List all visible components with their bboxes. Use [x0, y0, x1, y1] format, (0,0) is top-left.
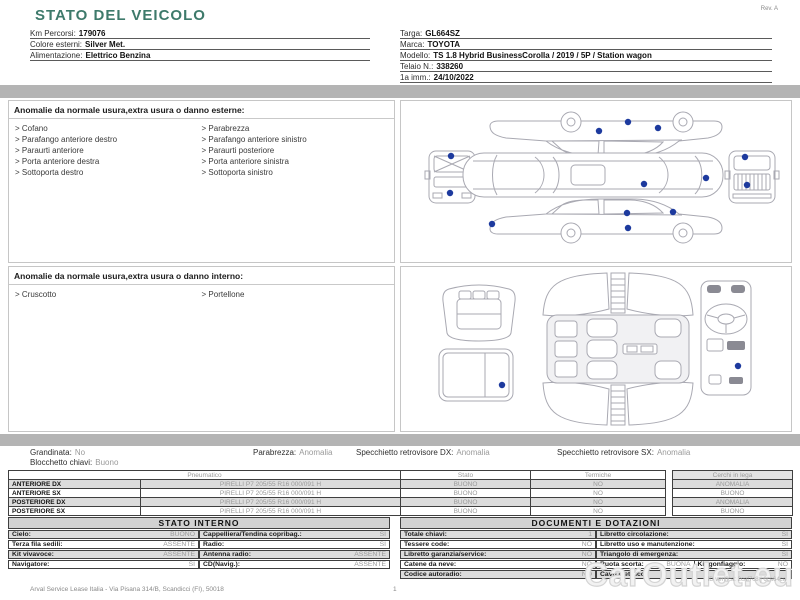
item-label: Cappelliera/Tendina copribag.:	[203, 531, 302, 538]
anomaly-item: Sottoporta destro	[15, 167, 202, 178]
item-label: Kit vivavoce:	[12, 551, 54, 558]
field-label: Alimentazione:	[30, 51, 82, 60]
field-label: Telaio N.:	[400, 62, 433, 71]
anomaly-item: Paraurti anteriore	[15, 145, 202, 156]
anomaly-item: Porta anteriore sinistra	[202, 156, 389, 167]
tire-cerchi: BUONO	[673, 507, 793, 516]
car-side-view-bottom	[490, 199, 722, 243]
rear-cabin-view	[443, 285, 515, 341]
table-row: Totale chiavi:1 Libretto circolazione:SI	[400, 530, 792, 539]
item-label: Codice autoradio:	[404, 571, 462, 578]
revision-label: Rev. A	[761, 6, 778, 12]
tire-stato: BUONO	[401, 507, 531, 516]
field-label: Marca:	[400, 40, 424, 49]
item-label: Antenna radio:	[203, 551, 251, 558]
table-row: Terza fila sedili:ASSENTE Radio:SI	[8, 540, 390, 549]
field-label: Km Percorsi:	[30, 29, 76, 38]
summary-blocchetto: Blocchetto chiavi:Buono	[30, 458, 118, 467]
summary-label: Specchietto retrovisore DX:	[356, 448, 453, 457]
external-anomalies-panel: Anomalie da normale usura,extra usura o …	[8, 100, 395, 263]
summary-value: Anomalia	[299, 448, 332, 457]
tire-termiche: NO	[531, 480, 666, 489]
item-value: SI	[380, 531, 386, 538]
anomaly-item: Parafango anteriore sinistro	[202, 134, 389, 145]
anomaly-item: Porta anteriore destra	[15, 156, 202, 167]
anomaly-item: Cofano	[15, 123, 202, 134]
anomaly-item: Paraurti posteriore	[202, 145, 389, 156]
field-row: Telaio N.: 338260	[400, 61, 772, 72]
field-value: 338260	[436, 62, 463, 71]
tire-header-row: Pneumatico Stato Termiche Cerchi in lega	[9, 471, 793, 480]
separator-bar	[0, 85, 800, 98]
tire-position: ANTERIORE DX	[9, 480, 141, 489]
tire-termiche: NO	[531, 507, 666, 516]
anomaly-item: Parabrezza	[202, 123, 389, 134]
car-top-view	[463, 153, 723, 197]
vehicle-info-left: Km Percorsi: 179076 Colore esterni: Silv…	[30, 28, 370, 61]
car-rear-view	[725, 151, 779, 203]
anomaly-item: Cruscotto	[15, 289, 202, 300]
tire-termiche: NO	[531, 489, 666, 498]
field-value: 179076	[79, 29, 106, 38]
tire-position: ANTERIORE SX	[9, 489, 141, 498]
tire-spec: PIRELLI P7 205/55 R16 000/091 H	[141, 507, 401, 516]
field-label: Colore esterni:	[30, 40, 82, 49]
summary-grandinata: Grandinata:No	[30, 448, 85, 457]
summary-label: Specchietto retrovisore SX:	[557, 448, 654, 457]
item-label: Radio:	[203, 541, 224, 548]
documenti-title: DOCUMENTI E DOTAZIONI	[400, 517, 792, 529]
tire-row: ANTERIORE DX PIRELLI P7 205/55 R16 000/0…	[9, 480, 793, 489]
page-title: STATO DEL VEICOLO	[35, 7, 206, 24]
tire-spec: PIRELLI P7 205/55 R16 000/091 H	[141, 498, 401, 507]
item-label: Catene da neve:	[404, 561, 456, 568]
summary-label: Grandinata:	[30, 448, 72, 457]
item-value: SI	[782, 541, 788, 548]
summary-label: Parabrezza:	[253, 448, 296, 457]
field-row: 1a imm.: 24/10/2022	[400, 72, 772, 83]
item-label: Libretto circolazione:	[600, 531, 669, 538]
interior-diagram-panel	[400, 266, 792, 432]
table-row: Kit vivavoce:ASSENTE Antenna radio:ASSEN…	[8, 550, 390, 559]
field-value: 24/10/2022	[434, 73, 474, 82]
summary-specchietto-sx: Specchietto retrovisore SX:Anomalia	[557, 448, 690, 457]
field-row: Colore esterni: Silver Met.	[30, 39, 370, 50]
internal-anomalies-title: Anomalie da normale usura,extra usura o …	[9, 267, 394, 285]
summary-parabrezza: Parabrezza:Anomalia	[253, 448, 333, 457]
external-anomalies-title: Anomalie da normale usura,extra usura o …	[9, 101, 394, 119]
field-value: GL664SZ	[425, 29, 460, 38]
table-row: Navigatore:SI CD(Navig.):ASSENTE	[8, 560, 390, 569]
tire-position: POSTERIORE DX	[9, 498, 141, 507]
tire-table: Pneumatico Stato Termiche Cerchi in lega…	[8, 470, 793, 516]
tire-header-pneumatico: Pneumatico	[9, 471, 401, 480]
tire-spec: PIRELLI P7 205/55 R16 000/091 H	[141, 489, 401, 498]
item-value: ASSENTE	[163, 541, 195, 548]
field-row: Alimentazione: Elettrico Benzina	[30, 50, 370, 61]
watermark: CarOutlet.eu	[584, 556, 794, 594]
tire-cerchi: BUONO	[673, 489, 793, 498]
field-row: Modello: TS 1.8 Hybrid BusinessCorolla /…	[400, 50, 772, 61]
tire-row: ANTERIORE SX PIRELLI P7 205/55 R16 000/0…	[9, 489, 793, 498]
summary-value: Anomalia	[657, 448, 690, 457]
item-label: Cielo:	[12, 531, 31, 538]
field-value: TS 1.8 Hybrid BusinessCorolla / 2019 / 5…	[433, 51, 652, 60]
tire-spec: PIRELLI P7 205/55 R16 000/091 H	[141, 480, 401, 489]
tire-row: POSTERIORE DX PIRELLI P7 205/55 R16 000/…	[9, 498, 793, 507]
summary-value: Buono	[95, 458, 118, 467]
item-label: CD(Navig.):	[203, 561, 240, 568]
tire-cerchi: ANOMALIA	[673, 480, 793, 489]
car-side-view-top	[490, 112, 722, 156]
item-label: Totale chiavi:	[404, 531, 447, 538]
summary-label: Blocchetto chiavi:	[30, 458, 92, 467]
tire-stato: BUONO	[401, 498, 531, 507]
tire-stato: BUONO	[401, 489, 531, 498]
footer-page-number: 1	[393, 586, 397, 593]
tailgate-view	[439, 349, 513, 401]
verification-id: ID verifica: 2caf7c8 j 6ca64ca	[708, 577, 786, 583]
interior-top-view	[543, 273, 693, 425]
field-row: Targa: GL664SZ	[400, 28, 772, 39]
anomaly-item: Parafango anteriore destro	[15, 134, 202, 145]
item-value: SI	[189, 561, 195, 568]
tire-cerchi: ANOMALIA	[673, 498, 793, 507]
vehicle-info-right: Targa: GL664SZ Marca: TOYOTA Modello: TS…	[400, 28, 772, 83]
tire-position: POSTERIORE SX	[9, 507, 141, 516]
item-value: ASSENTE	[354, 551, 386, 558]
field-row: Marca: TOYOTA	[400, 39, 772, 50]
field-label: Modello:	[400, 51, 430, 60]
table-row: Tessere code:NO Libretto uso e manutenzi…	[400, 540, 792, 549]
dashboard-view	[701, 281, 751, 395]
item-value: NO	[582, 541, 592, 548]
tire-stato: BUONO	[401, 480, 531, 489]
tire-header-cerchi: Cerchi in lega	[673, 471, 793, 480]
field-value: TOYOTA	[427, 40, 460, 49]
tire-header-stato: Stato	[401, 471, 531, 480]
tire-header-termiche: Termiche	[531, 471, 666, 480]
item-value: SI	[782, 531, 788, 538]
stato-interno-title: STATO INTERNO	[8, 517, 390, 529]
interior-damage-diagram	[401, 267, 791, 431]
item-label: Navigatore:	[12, 561, 49, 568]
anomaly-item: Portellone	[202, 289, 389, 300]
item-value: ASSENTE	[163, 551, 195, 558]
item-label: Libretto garanzia/service:	[404, 551, 486, 558]
item-label: Terza fila sedili:	[12, 541, 63, 548]
summary-value: Anomalia	[456, 448, 489, 457]
exterior-damage-diagram	[401, 101, 791, 262]
item-label: Libretto uso e manutenzione:	[600, 541, 695, 548]
tire-row: POSTERIORE SX PIRELLI P7 205/55 R16 000/…	[9, 507, 793, 516]
table-row: Cielo:BUONO Cappelliera/Tendina copribag…	[8, 530, 390, 539]
field-value: Silver Met.	[85, 40, 125, 49]
summary-specchietto-dx: Specchietto retrovisore DX:Anomalia	[356, 448, 490, 457]
item-value: BUONO	[170, 531, 195, 538]
field-label: 1a imm.:	[400, 73, 431, 82]
internal-anomalies-panel: Anomalie da normale usura,extra usura o …	[8, 266, 395, 432]
exterior-diagram-panel	[400, 100, 792, 263]
separator-bar	[0, 434, 800, 446]
field-label: Targa:	[400, 29, 422, 38]
item-value: ASSENTE	[354, 561, 386, 568]
tire-termiche: NO	[531, 498, 666, 507]
item-value: SI	[380, 541, 386, 548]
field-value: Elettrico Benzina	[85, 51, 150, 60]
field-row: Km Percorsi: 179076	[30, 28, 370, 39]
stato-interno-table: STATO INTERNO Cielo:BUONO Cappelliera/Te…	[8, 516, 390, 570]
anomaly-item: Sottoporta sinistro	[202, 167, 389, 178]
item-label: Tessere code:	[404, 541, 449, 548]
summary-value: No	[75, 448, 85, 457]
footer-company: Arval Service Lease Italia - Via Pisana …	[30, 586, 224, 593]
item-value: 1	[588, 531, 592, 538]
